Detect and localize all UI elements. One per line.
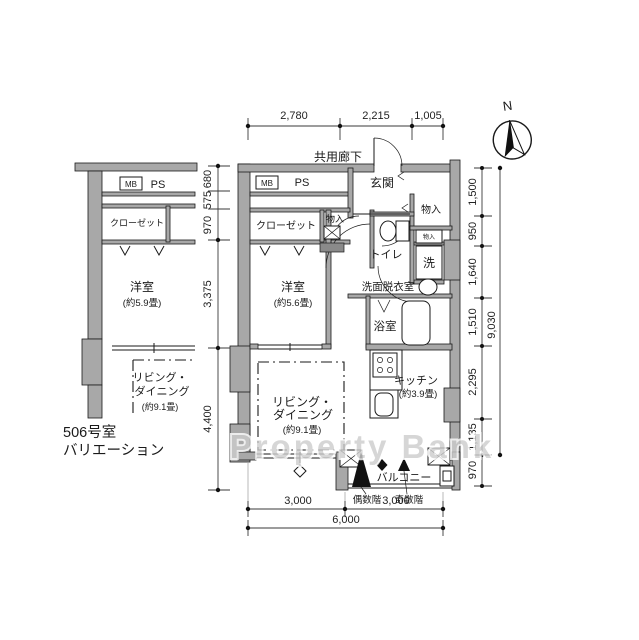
entry-door-arrow-icon bbox=[398, 172, 404, 180]
dim-bottom-2: 3,000 bbox=[382, 495, 410, 507]
dim-top-3: 1,005 bbox=[414, 110, 442, 122]
dim-top-2: 2,215 bbox=[362, 110, 390, 122]
bedroom-size-label: (約5.6畳) bbox=[274, 297, 313, 309]
washbasin-icon bbox=[419, 279, 437, 295]
variation-caption-1: 506号室 bbox=[63, 424, 116, 441]
dim-right-3: 1,640 bbox=[467, 258, 479, 286]
compass: N bbox=[488, 96, 534, 162]
ps-label: PS bbox=[295, 177, 310, 189]
dim-right-1: 1,500 bbox=[467, 178, 479, 206]
dim-left-1: 680 bbox=[202, 170, 214, 188]
toilet-tank-icon bbox=[396, 221, 409, 241]
floorplan-drawing: 2,780 2,215 1,005 N 共用廊下 bbox=[0, 0, 639, 640]
closet-hanger-icon bbox=[120, 246, 130, 255]
stove-icon bbox=[373, 353, 397, 377]
mb-label: MB bbox=[125, 180, 137, 189]
balcony-label: バルコニー bbox=[377, 471, 432, 484]
living-size-label: (約9.1畳) bbox=[142, 401, 179, 412]
dimension-top: 2,780 2,215 1,005 bbox=[246, 110, 445, 140]
closet-label: クローゼット bbox=[256, 220, 316, 232]
dim-right-total: 9,030 bbox=[486, 311, 498, 339]
toilet-label: トイレ bbox=[370, 249, 403, 261]
bedroom-label: 洋室 bbox=[281, 279, 305, 294]
bath-folding-door-icon bbox=[378, 300, 390, 312]
meter-badge bbox=[320, 243, 344, 252]
living-label-1: リビング・ bbox=[272, 395, 332, 409]
compass-north-label: N bbox=[502, 98, 513, 114]
living-label-2: ダイニング bbox=[273, 407, 333, 422]
living-label-1: リビング・ bbox=[133, 370, 188, 384]
entrance-label: 玄関 bbox=[370, 175, 394, 190]
dim-bottom-total: 6,000 bbox=[332, 514, 360, 526]
storage-label: 物入 bbox=[423, 233, 435, 241]
storage-label: 物入 bbox=[421, 203, 441, 216]
bathtub-icon bbox=[402, 301, 430, 345]
window-marker-diamond bbox=[294, 465, 306, 477]
ps-label: PS bbox=[151, 179, 166, 191]
storage-label: 物入 bbox=[326, 213, 344, 224]
closet-label: クローゼット bbox=[110, 217, 164, 228]
watermark-text: Property Bank bbox=[230, 428, 495, 465]
dim-top-1: 2,780 bbox=[280, 110, 308, 122]
mb-label: MB bbox=[261, 179, 273, 188]
kitchen-label: キッチン bbox=[394, 374, 438, 387]
variation-plan: MB PS クローゼット 洋室 (約5.9畳) リビング・ ダイニング (約9.… bbox=[63, 163, 197, 459]
dim-bottom-1: 3,000 bbox=[284, 495, 312, 507]
corridor-label: 共用廊下 bbox=[314, 149, 362, 164]
dim-left-5: 4,400 bbox=[202, 405, 214, 433]
kitchen-sink-icon bbox=[375, 393, 393, 416]
closet-hanger-icon bbox=[260, 246, 270, 255]
bath-label: 浴室 bbox=[374, 319, 397, 333]
living-label-2: ダイニング bbox=[135, 384, 190, 398]
dim-left-4: 3,375 bbox=[202, 280, 214, 308]
entrance-door-arc bbox=[374, 138, 402, 166]
dimension-left: 680 575 970 3,375 4,400 bbox=[202, 164, 230, 492]
kitchen-size-label: (約3.9畳) bbox=[399, 388, 438, 400]
dim-left-3: 970 bbox=[202, 216, 214, 234]
storage-door-arrow-icon bbox=[402, 204, 408, 212]
closet-hanger-icon bbox=[154, 246, 164, 255]
dim-right-2: 950 bbox=[467, 222, 479, 240]
even-floor-label: 偶数階 bbox=[353, 494, 382, 506]
dim-left-2: 575 bbox=[202, 191, 214, 209]
floorplan-page: 2,780 2,215 1,005 N 共用廊下 bbox=[0, 0, 639, 640]
toilet-bowl-icon bbox=[380, 221, 396, 241]
bedroom-label: 洋室 bbox=[130, 279, 154, 294]
dim-right-5: 2,295 bbox=[467, 368, 479, 396]
closet-hanger-icon bbox=[294, 246, 304, 255]
dim-right-4: 1,510 bbox=[467, 308, 479, 336]
bedroom-size-label: (約5.9畳) bbox=[123, 297, 162, 309]
washroom-label: 洗面脱衣室 bbox=[362, 280, 415, 293]
washer-label: 洗 bbox=[423, 256, 435, 270]
variation-caption-2: バリエーション bbox=[63, 443, 164, 459]
